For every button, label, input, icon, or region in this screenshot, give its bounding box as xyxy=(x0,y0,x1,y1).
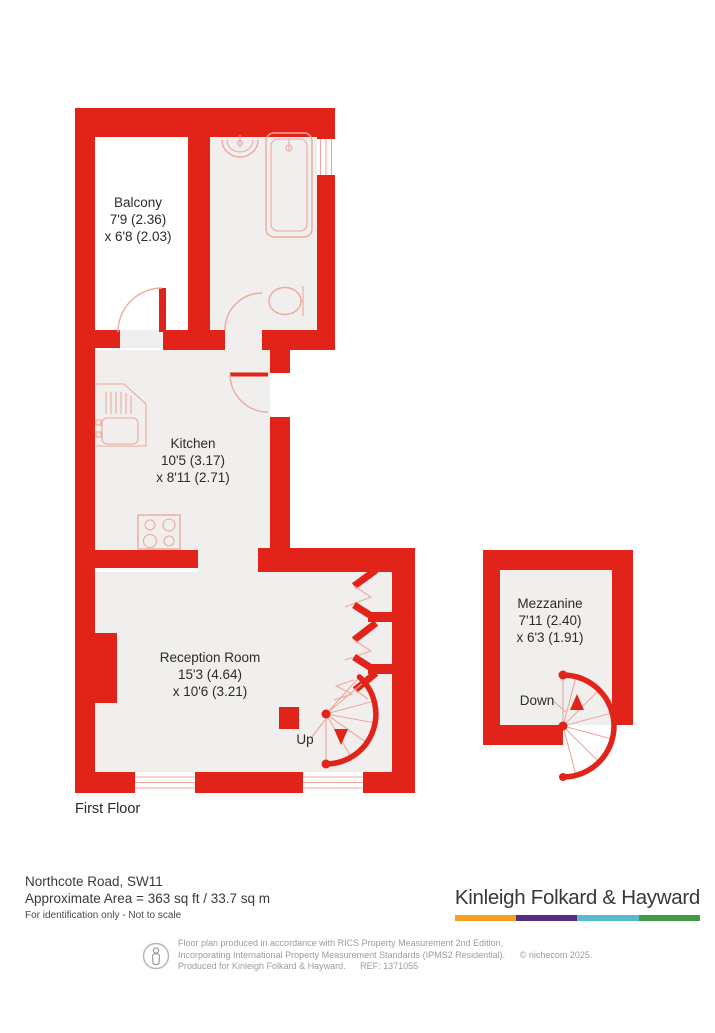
floorplan-page: { "plan": { "floor_label": "First Floor"… xyxy=(0,0,715,1033)
balcony-dim2: x 6'8 (2.03) xyxy=(104,229,171,244)
brand-bar-segment xyxy=(516,915,577,921)
brand-logo: Kinleigh Folkard & Hayward xyxy=(455,886,700,921)
up-label: Up xyxy=(296,732,313,747)
kitchen-dim1: 10'5 (3.17) xyxy=(161,453,225,468)
mezzanine-dim2: x 6'3 (1.91) xyxy=(516,630,583,645)
mezzanine-label: Mezzanine xyxy=(517,596,582,611)
kitchen-dim2: x 8'11 (2.71) xyxy=(156,470,230,485)
floor-title: First Floor xyxy=(75,801,140,817)
bathroom-window xyxy=(317,139,335,175)
balcony-doorway xyxy=(120,330,163,348)
brand-name: Kinleigh Folkard & Hayward xyxy=(455,886,700,910)
reference-number: REF: 1371055 xyxy=(360,961,418,973)
kitchen-label: Kitchen xyxy=(170,436,215,451)
reception-window-left xyxy=(135,777,195,788)
brand-color-bar xyxy=(455,915,700,921)
reception-floor xyxy=(95,572,392,772)
disclaimer-line3: Produced for Kinleigh Folkard & Hayward.… xyxy=(178,961,592,973)
person-icon xyxy=(142,942,170,970)
chimney-breast xyxy=(93,633,117,703)
column xyxy=(279,707,299,729)
mezzanine-floor xyxy=(500,570,612,725)
brand-bar-segment xyxy=(577,915,638,921)
disclaimer: Floor plan produced in accordance with R… xyxy=(178,938,592,973)
reception-dim1: 15'3 (4.64) xyxy=(178,667,242,682)
brand-bar-segment xyxy=(639,915,700,921)
approximate-area: Approximate Area = 363 sq ft / 33.7 sq m xyxy=(25,891,270,906)
brand-bar-segment xyxy=(455,915,516,921)
reception-label: Reception Room xyxy=(160,650,261,665)
disclaimer-line1: Floor plan produced in accordance with R… xyxy=(178,938,592,950)
identification-note: For identification only - Not to scale xyxy=(25,910,181,921)
down-label: Down xyxy=(520,693,555,708)
property-address: Northcote Road, SW11 xyxy=(25,874,163,889)
reception-window-right xyxy=(303,777,363,788)
mezzanine-dim1: 7'11 (2.40) xyxy=(518,613,581,628)
balcony-dim1: 7'9 (2.36) xyxy=(110,212,167,227)
balcony-label: Balcony xyxy=(114,195,162,210)
copyright: © nichecom 2025. xyxy=(520,950,593,962)
kitchen-reception-opening xyxy=(198,550,258,572)
disclaimer-line2: Incorporating International Property Mea… xyxy=(178,950,592,962)
reception-dim2: x 10'6 (3.21) xyxy=(173,684,248,699)
bathroom-doorway xyxy=(225,330,262,350)
